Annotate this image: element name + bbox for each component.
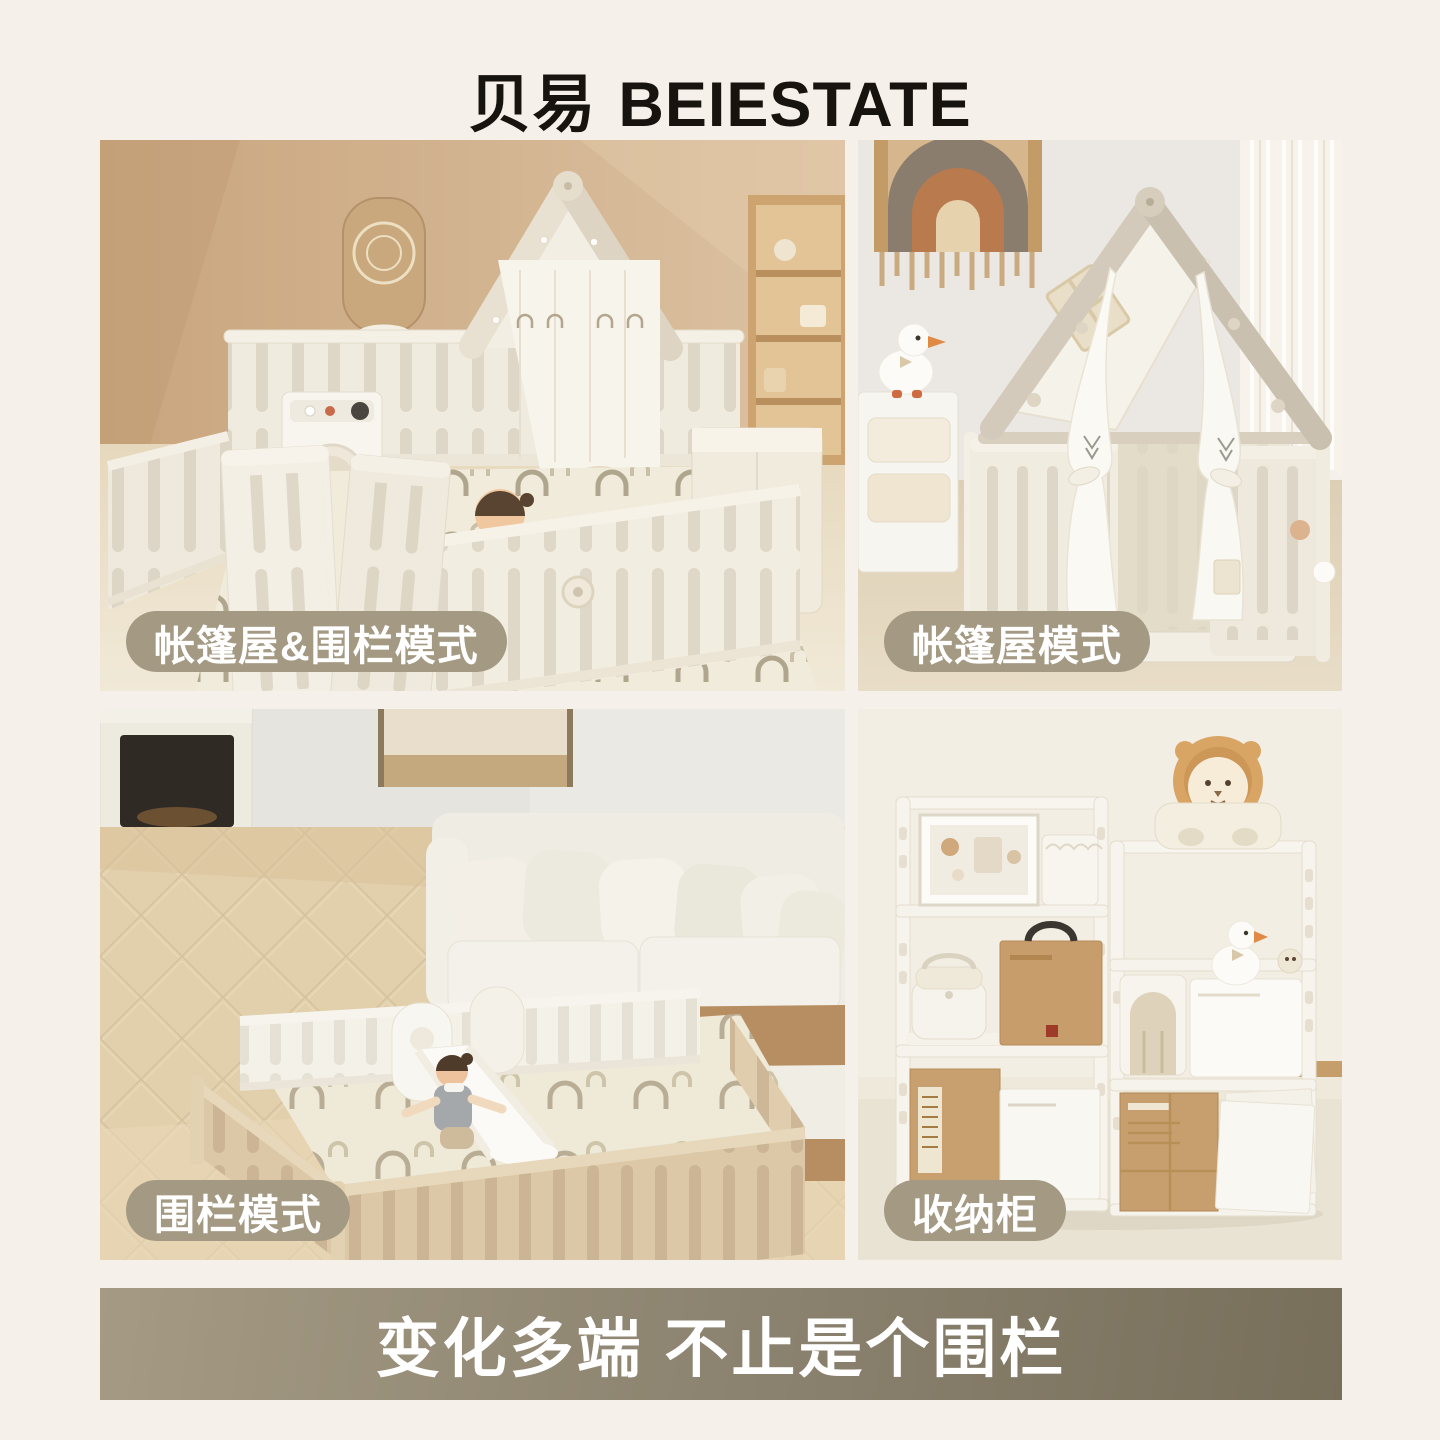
brand-header: 贝易BEIESTATE: [0, 54, 1440, 145]
mini-plush: [1278, 949, 1302, 973]
kraft-gift-bag: [1000, 925, 1102, 1046]
curtain-tag: [1214, 560, 1240, 594]
fence-post: [190, 1075, 204, 1165]
shelf-left-column: [896, 797, 1108, 1212]
storage-scene: [858, 709, 1342, 1260]
fence-scene: [100, 709, 845, 1260]
banner-title: 变化多端 不止是个围栏: [376, 1298, 1067, 1390]
photo-fence-mode: 围栏模式: [100, 709, 845, 1260]
photo-storage-cabinet: 收纳柜: [858, 709, 1342, 1260]
ball-beige: [1290, 520, 1310, 540]
ball-white: [1313, 561, 1335, 583]
fireplace: [100, 709, 252, 831]
white-box: [1215, 1101, 1315, 1214]
photo-label-tent-and-fence-mode: 帐篷屋&围栏模式: [126, 611, 507, 672]
hallway: [378, 709, 573, 787]
brand-name-chinese: 贝易: [468, 70, 596, 140]
tent-and-fence-scene: [100, 140, 845, 691]
photo-frame: [920, 815, 1038, 905]
photo-tent-mode: 帐篷屋模式: [858, 140, 1342, 691]
bottom-banner: 变化多端 不止是个围栏: [100, 1288, 1342, 1400]
wooden-shelf: [748, 195, 845, 465]
brand-name-english: BEIESTATE: [618, 70, 971, 140]
arch-window-toy: [1120, 975, 1186, 1075]
wall-tapestry: [874, 140, 1042, 290]
kraft-print-box: [1120, 1093, 1218, 1211]
tent-scene: [858, 140, 1342, 691]
photo-tent-and-fence-mode: 帐篷屋&围栏模式: [100, 140, 845, 691]
photo-label-fence-mode: 围栏模式: [126, 1180, 350, 1241]
photo-label-tent-mode: 帐篷屋模式: [884, 611, 1150, 672]
photo-label-storage-cabinet: 收纳柜: [884, 1180, 1066, 1241]
